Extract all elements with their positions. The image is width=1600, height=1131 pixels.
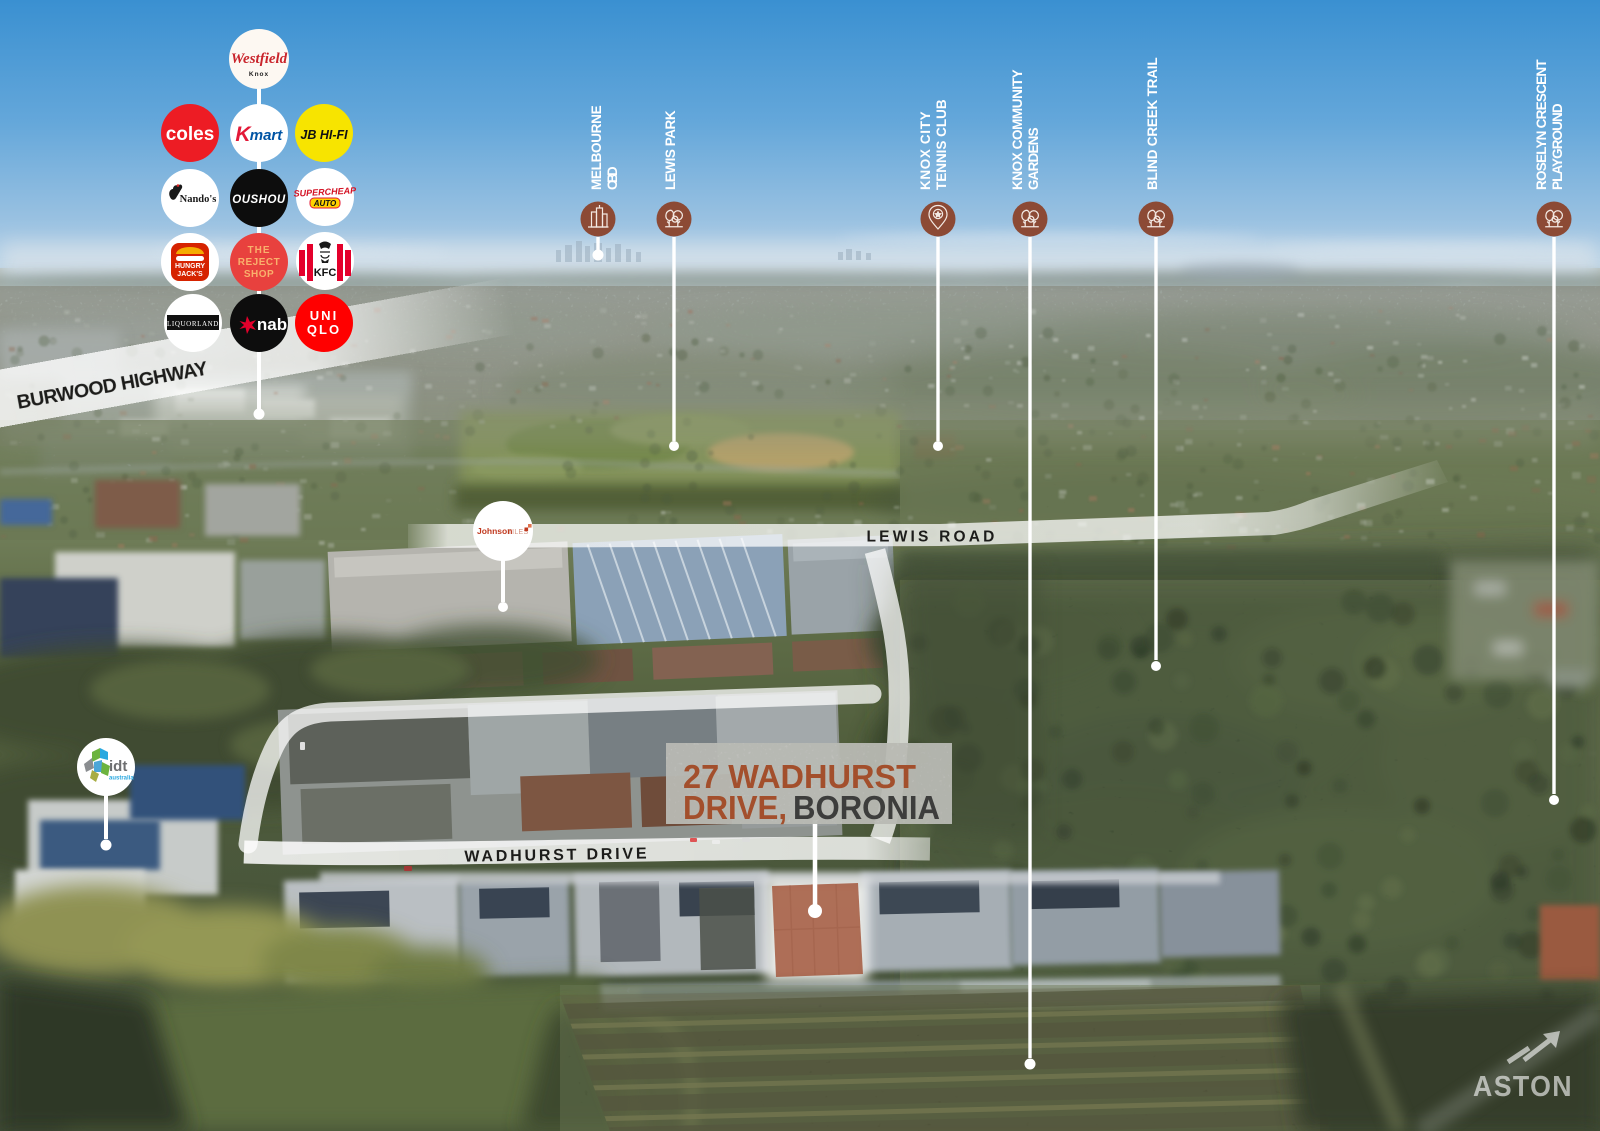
svg-text:THE: THE [248, 245, 271, 256]
svg-text:Nando's: Nando's [180, 194, 217, 205]
svg-text:QLO: QLO [307, 322, 341, 337]
svg-text:LIQUORLAND: LIQUORLAND [167, 320, 219, 328]
svg-text:MELBOURNE: MELBOURNE [589, 104, 604, 190]
svg-text:coles: coles [166, 124, 215, 145]
svg-text:DRIVE,: DRIVE, [683, 789, 787, 826]
svg-text:KFC: KFC [314, 267, 337, 279]
svg-text:mart: mart [250, 127, 284, 144]
svg-text:idt: idt [109, 758, 127, 775]
svg-text:nab: nab [257, 315, 287, 334]
svg-text:WADHURST DRIVE: WADHURST DRIVE [464, 845, 649, 865]
svg-text:PLAYGROUND: PLAYGROUND [1550, 102, 1565, 190]
svg-text:AUTO: AUTO [313, 199, 337, 208]
svg-text:TENNIS CLUB: TENNIS CLUB [934, 98, 949, 190]
svg-text:JACK'S: JACK'S [177, 271, 203, 278]
svg-text:KNOX COMMUNITY: KNOX COMMUNITY [1010, 68, 1025, 190]
svg-text:OUSHOU: OUSHOU [232, 194, 286, 206]
svg-text:ASTON: ASTON [1473, 1071, 1573, 1103]
svg-text:LEWIS PARK: LEWIS PARK [663, 109, 678, 190]
svg-text:GARDENS: GARDENS [1026, 126, 1041, 190]
svg-text:SHOP: SHOP [244, 269, 274, 280]
svg-text:Knox: Knox [249, 71, 269, 78]
svg-text:australia: australia [109, 776, 134, 782]
svg-text:REJECT: REJECT [238, 257, 280, 268]
svg-text:BLIND CREEK TRAIL: BLIND CREEK TRAIL [1145, 56, 1160, 190]
svg-text:UNI: UNI [310, 308, 338, 323]
svg-text:BORONIA: BORONIA [793, 789, 940, 826]
svg-text:CBD: CBD [605, 165, 620, 190]
svg-text:LEWIS ROAD: LEWIS ROAD [866, 529, 997, 546]
svg-text:JB HI-FI: JB HI-FI [300, 128, 348, 142]
svg-text:HUNGRY: HUNGRY [175, 263, 205, 270]
svg-text:KNOX CITY: KNOX CITY [918, 110, 933, 190]
svg-text:Westfield: Westfield [231, 51, 288, 67]
svg-text:ROSELYN CRESCENT: ROSELYN CRESCENT [1534, 58, 1549, 190]
